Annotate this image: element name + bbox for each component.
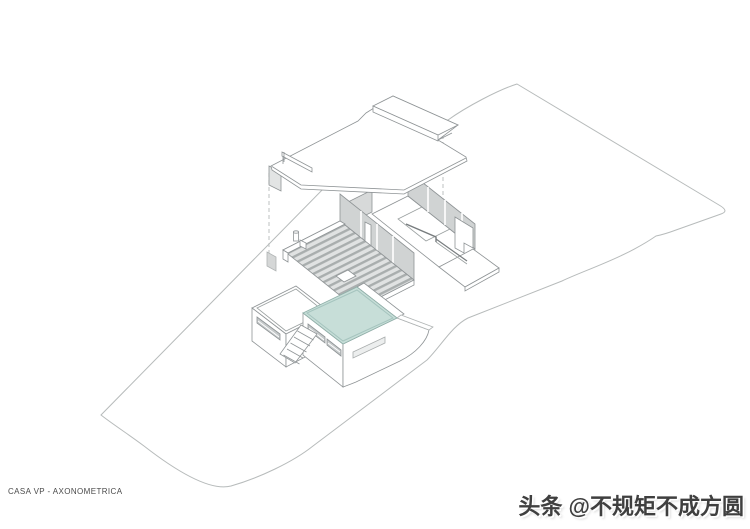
roof-slab: [271, 96, 467, 194]
drawing-title: CASA VP - AXONOMETRICA: [8, 487, 122, 496]
axonometric-drawing: [0, 0, 750, 529]
architectural-drawing-sheet: CASA VP - AXONOMETRICA 头条 @不规矩不成方圆: [0, 0, 750, 529]
roof: [271, 96, 467, 194]
west-gray-panel: [267, 252, 276, 271]
lower-level: [252, 283, 433, 387]
watermark-text: 头条 @不规矩不成方圆: [518, 489, 744, 521]
